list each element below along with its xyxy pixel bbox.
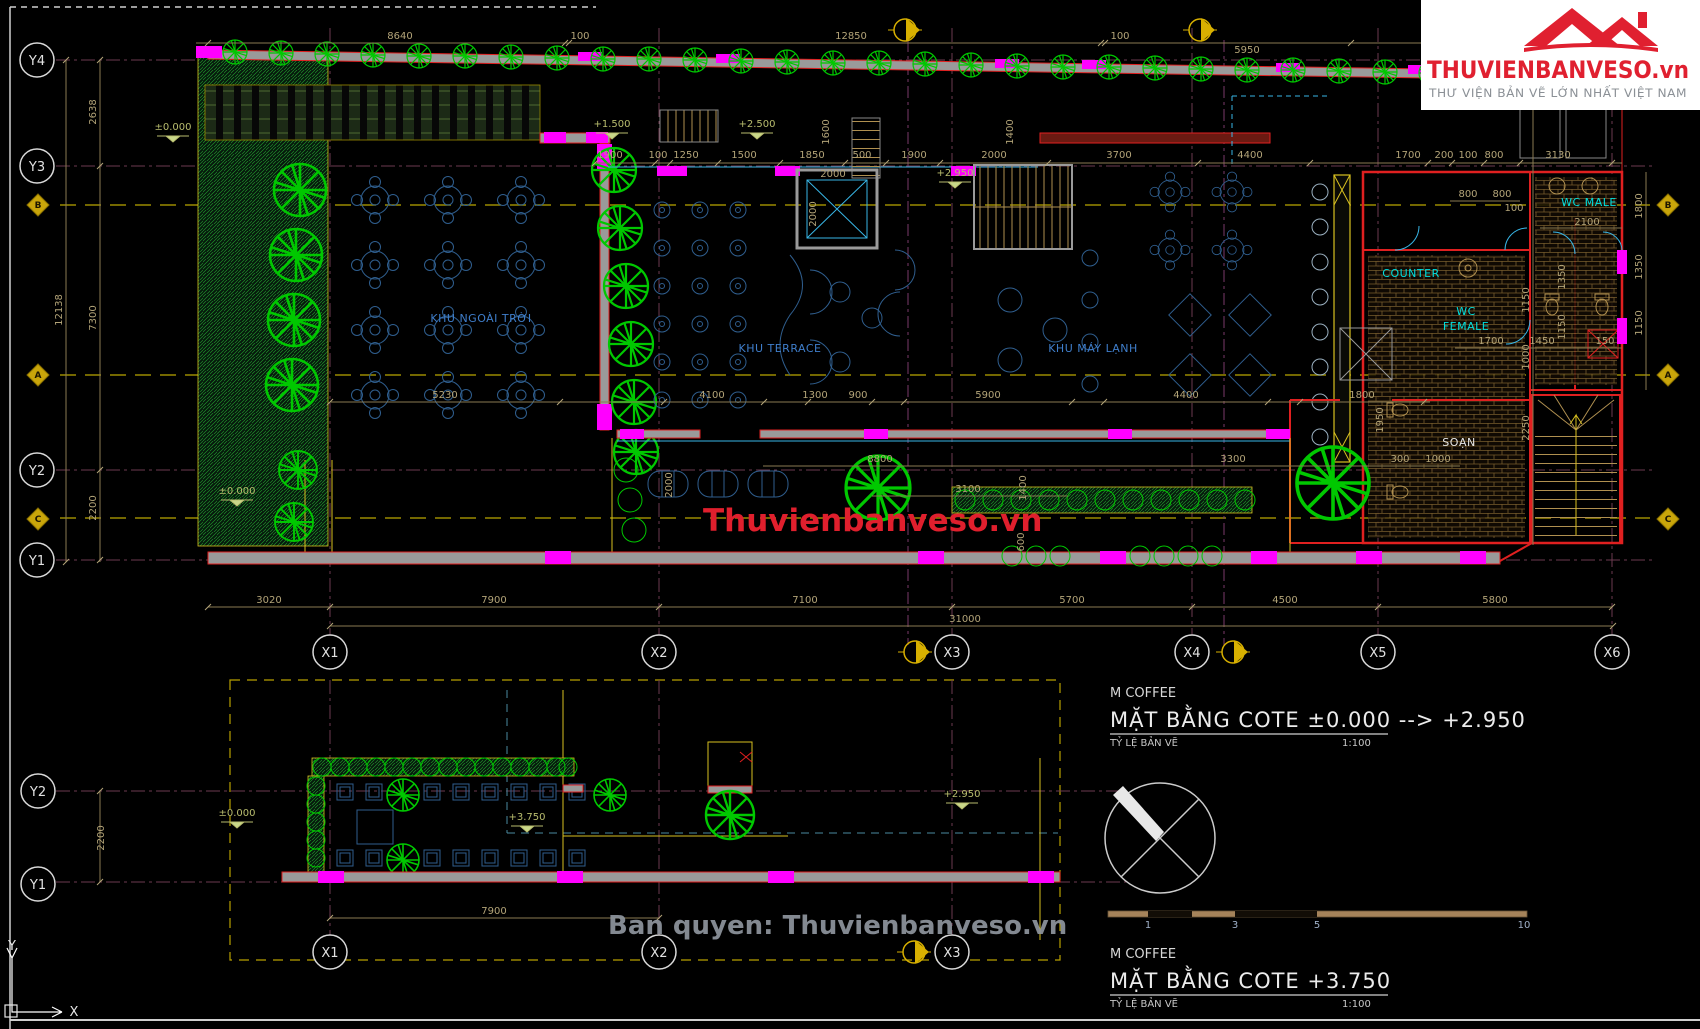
scalebar-label: 10	[1518, 920, 1531, 931]
dim-label: 100	[1110, 31, 1129, 42]
room-label-wc-male: WC MALE	[1561, 196, 1617, 209]
axis-diamond-c-right: C	[1665, 515, 1672, 525]
north-needle-icon	[1113, 786, 1164, 841]
dim-label: 8800	[867, 454, 892, 465]
dim-label: 1350	[1634, 254, 1645, 279]
dim-label: 1300	[802, 390, 827, 401]
level-label: +3.750	[508, 812, 545, 823]
dim-label: 1700	[1395, 150, 1420, 161]
dim-label: 3020	[256, 595, 281, 606]
dim-label: 1400	[1018, 475, 1029, 500]
dim-label: 4500	[1272, 595, 1297, 606]
drawing-title-1: MẶT BẰNG COTE ±0.000 --> +2.950	[1110, 704, 1526, 732]
dim-label: 5700	[1059, 595, 1084, 606]
axis-diamond-b: B	[35, 201, 42, 211]
stair-rear	[1532, 395, 1620, 543]
dim-label: 1000	[1425, 454, 1450, 465]
dim-label: 7900	[481, 595, 506, 606]
ucs-x-label: X	[70, 1005, 79, 1020]
axis-bubble-y1: Y1	[28, 554, 45, 569]
dim-label: 5800	[1482, 595, 1507, 606]
graphic-scale-bar: 1 3 5 10	[1108, 911, 1530, 931]
dim-label: 3100	[955, 484, 980, 495]
dim-label: 1150	[1557, 314, 1568, 339]
dim-label: 3700	[1106, 150, 1131, 161]
dim-label: 2200	[88, 495, 99, 520]
level-label: +2.950	[936, 168, 973, 179]
level-label: ±0.000	[218, 486, 255, 497]
dim-label: 1400	[1005, 119, 1016, 144]
dim-label: 1900	[597, 150, 622, 161]
dim-label: 100	[1458, 150, 1477, 161]
axis-bubble-p2-x2: X2	[650, 946, 667, 961]
section-marker-icon	[888, 18, 922, 42]
dim-label: 900	[848, 390, 867, 401]
dim-label: 4400	[1237, 150, 1262, 161]
axis-bubble-x2: X2	[650, 646, 667, 661]
axis-diamond-c: C	[35, 515, 42, 525]
dim-label: 1700	[1478, 336, 1503, 347]
booth-seating	[780, 250, 915, 384]
room-label-wc-female-2: FEMALE	[1443, 320, 1489, 333]
dim-label: 800	[1458, 189, 1477, 200]
dim-label: 150	[1595, 336, 1614, 347]
dim-label: 1850	[799, 150, 824, 161]
dim-label: 100	[570, 31, 589, 42]
dim-label: 2000	[808, 201, 819, 226]
dim-label: 2000	[664, 472, 675, 497]
section-marker-icon	[898, 640, 932, 664]
section-marker-icon	[1183, 18, 1217, 42]
dim-label: 800	[1484, 150, 1503, 161]
level-label: ±0.000	[218, 808, 255, 819]
dim-label: 1250	[673, 150, 698, 161]
brand-tagline: THƯ VIỆN BẢN VẼ LỚN NHẤT VIỆT NAM	[1428, 84, 1687, 100]
dim-label: 2000	[820, 169, 845, 180]
terrace-tables	[654, 202, 746, 408]
dim-label: 2200	[96, 825, 107, 850]
axis-bubble-x5: X5	[1369, 646, 1386, 661]
dim-label: 2638	[88, 99, 99, 124]
room-label-terrace: KHU TERRACE	[738, 342, 821, 355]
dim-label: 12850	[835, 31, 867, 42]
level-label: +1.500	[593, 119, 630, 130]
axis-bubble-x6: X6	[1603, 646, 1620, 661]
room-label-counter: COUNTER	[1382, 267, 1439, 280]
dim-label: 800	[1492, 189, 1511, 200]
axis-bubble-y3: Y3	[28, 160, 45, 175]
dim-label: 7300	[88, 305, 99, 330]
ucs-y-label: Y	[7, 939, 16, 954]
axis-bubble-x3: X3	[943, 646, 960, 661]
dim-label: 1900	[901, 150, 926, 161]
dim-label: 100	[1504, 203, 1523, 214]
scale-label: TỶ LỆ BẢN VẼ	[1109, 735, 1178, 749]
dim-label: 8640	[387, 31, 412, 42]
dim-label: 31000	[949, 614, 981, 625]
scalebar-label: 1	[1145, 920, 1151, 931]
axis-bubble-p2-x1: X1	[321, 946, 338, 961]
room-label-wc-female-1: WC	[1456, 305, 1476, 318]
dim-label: 500	[852, 150, 871, 161]
dim-label: 1800	[1349, 390, 1374, 401]
watermark-center: Thuvienbanveso.vn	[703, 503, 1042, 539]
cad-sheet: KHU NGOÀI TRỜI KHU TERRACE KHU MÁY LẠNH …	[0, 0, 1700, 1029]
dim-label: 1150	[1521, 287, 1532, 312]
project-name: M COFFEE	[1110, 686, 1176, 701]
brand-logo: THUVIENBANVESO.vn THƯ VIỆN BẢN VẼ LỚN NH…	[1421, 0, 1700, 110]
axis-bubble-x1: X1	[321, 646, 338, 661]
dim-label: 1800	[1634, 193, 1645, 218]
dim-label: 5900	[975, 390, 1000, 401]
outdoor-tables	[352, 177, 545, 419]
dim-label: 1350	[1557, 264, 1568, 289]
title-block-1: M COFFEE MẶT BẰNG COTE ±0.000 --> +2.950…	[1109, 686, 1526, 749]
scale-label: TỶ LỆ BẢN VẼ	[1109, 996, 1178, 1010]
dim-label: 200	[1434, 150, 1453, 161]
watermark-bottom: Ban quyen: Thuvienbanveso.vn	[608, 911, 1067, 941]
dim-label: 5950	[1234, 45, 1259, 56]
section-marker-icon	[1216, 640, 1250, 664]
drawing-title-2: MẶT BẰNG COTE +3.750	[1110, 965, 1391, 993]
level-label: +2.950	[943, 789, 980, 800]
axis-bubble-p2-y2: Y2	[29, 785, 46, 800]
room-label-prep: SOẠN	[1442, 436, 1475, 449]
dim-label: 7900	[481, 906, 506, 917]
dim-label: 2000	[981, 150, 1006, 161]
scalebar-label: 5	[1314, 920, 1320, 931]
stair-main	[974, 165, 1072, 249]
floor-plan-1: KHU NGOÀI TRỜI KHU TERRACE KHU MÁY LẠNH …	[154, 40, 1627, 566]
dim-label: 3300	[1220, 454, 1245, 465]
dim-label: 1500	[731, 150, 756, 161]
brand-name: THUVIENBANVESO.vn	[1427, 56, 1689, 84]
north-compass	[1105, 783, 1215, 893]
dim-label: 1600	[821, 119, 832, 144]
divider-wall	[540, 132, 612, 430]
ucs-icon: Y X	[5, 939, 79, 1020]
dim-label: 3130	[1545, 150, 1570, 161]
axis-diamond-a-right: A	[1665, 371, 1672, 381]
dim-label: 5230	[432, 390, 457, 401]
scale-value: 1:100	[1342, 738, 1371, 749]
dim-label: 12138	[54, 294, 65, 326]
axis-bubble-p2-y1: Y1	[29, 878, 46, 893]
axis-bubble-y2: Y2	[28, 464, 45, 479]
scale-value: 1:100	[1342, 999, 1371, 1010]
axis-diamond-a: A	[35, 371, 42, 381]
rear-wall	[617, 429, 1290, 441]
project-name: M COFFEE	[1110, 947, 1176, 962]
axis-bubble-x4: X4	[1183, 646, 1200, 661]
plan2-chairs	[337, 784, 585, 866]
dim-label: 2100	[1574, 217, 1599, 228]
title-block-2: M COFFEE MẶT BẰNG COTE +3.750 TỶ LỆ BẢN …	[1109, 947, 1391, 1010]
scalebar-label: 3	[1232, 920, 1238, 931]
axis-bubble-p2-x3: X3	[943, 946, 960, 961]
dim-label: 1150	[1634, 310, 1645, 335]
dim-label: 1450	[1529, 336, 1554, 347]
axis-bubble-y4: Y4	[28, 54, 45, 69]
bottom-wall	[208, 543, 1532, 566]
room-label-ac: KHU MÁY LẠNH	[1048, 342, 1138, 355]
dim-label: 100	[648, 150, 667, 161]
cad-drawing-canvas: KHU NGOÀI TRỜI KHU TERRACE KHU MÁY LẠNH …	[0, 0, 1700, 1029]
dim-label: 300	[1390, 454, 1409, 465]
garden-area	[198, 54, 540, 552]
dim-label: 1950	[1375, 407, 1386, 432]
counter-area	[1312, 175, 1350, 462]
dim-label: 7100	[792, 595, 817, 606]
room-label-outdoor: KHU NGOÀI TRỜI	[430, 312, 531, 325]
dim-label: 4100	[699, 390, 724, 401]
dim-label: 2250	[1521, 415, 1532, 440]
dim-label: 4400	[1173, 390, 1198, 401]
level-label: ±0.000	[154, 122, 191, 133]
axis-diamond-b-right: B	[1665, 201, 1672, 211]
level-label: +2.500	[738, 119, 775, 130]
